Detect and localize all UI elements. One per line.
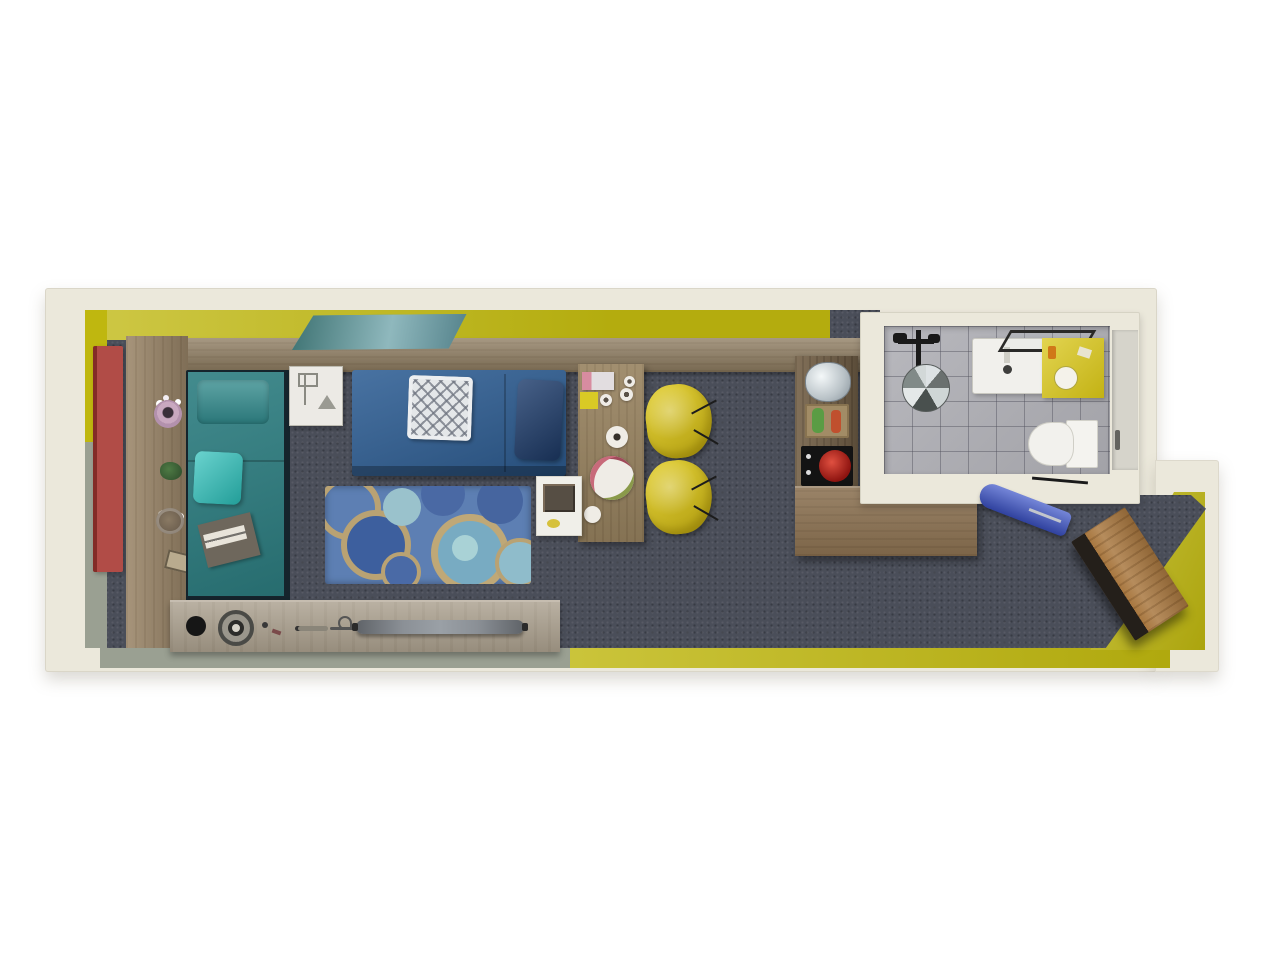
area-rug	[325, 486, 531, 584]
skateboard-truck	[352, 623, 358, 631]
red-kettle	[819, 450, 851, 482]
bathroom-door	[1112, 330, 1138, 470]
bed-tray	[197, 512, 260, 568]
lemon	[547, 519, 560, 528]
bottle-tray	[543, 484, 575, 512]
flower-bowl	[156, 508, 184, 534]
speaker-small	[186, 616, 206, 636]
mug	[584, 506, 601, 523]
shower-pipe	[916, 330, 921, 366]
rug-circle-inner	[452, 535, 478, 561]
lattice-cushion	[407, 375, 473, 441]
cooktop	[801, 446, 853, 486]
food-plate	[590, 456, 634, 500]
bed-pillow	[197, 380, 269, 424]
toilet-bowl	[1028, 422, 1074, 466]
red-bottle	[831, 410, 841, 433]
cooktop-knob	[806, 454, 811, 459]
yellow-chair	[646, 384, 712, 458]
bowl	[606, 426, 628, 448]
dining-desk	[578, 364, 644, 542]
pink-box	[582, 372, 614, 390]
bathroom-counter	[1042, 338, 1104, 398]
speaker-round	[218, 610, 254, 646]
side-table	[536, 476, 582, 536]
sketch-line	[304, 375, 306, 405]
book	[203, 525, 247, 549]
shower-valve	[893, 333, 907, 343]
skateboard	[356, 620, 524, 634]
round-basin	[1054, 366, 1078, 390]
rug-circle	[421, 486, 465, 516]
rug-circle	[381, 552, 421, 584]
yellow-chair	[646, 460, 712, 534]
floor-plan-canvas	[0, 0, 1280, 960]
yellow-note	[580, 392, 598, 409]
toilet	[1028, 420, 1096, 466]
nightstand	[289, 366, 343, 426]
bed-frame	[186, 370, 290, 602]
cosmetic-bottle	[1048, 346, 1056, 359]
single-bed	[188, 372, 284, 596]
wall-art	[292, 314, 470, 350]
shower-head	[902, 364, 950, 412]
small-plate	[624, 376, 635, 387]
sink-faucet	[1003, 365, 1012, 374]
kitchenette-unit	[795, 356, 858, 488]
potted-plant	[160, 462, 182, 480]
small-plate	[620, 388, 633, 401]
turquoise-cushion	[193, 451, 244, 505]
rug-circle	[383, 488, 421, 526]
sofa-seam	[504, 374, 506, 472]
red-door	[93, 346, 123, 572]
sofa-daybed	[352, 370, 566, 476]
small-object	[272, 629, 282, 636]
sketch-triangle	[318, 395, 336, 409]
flower-pot	[154, 400, 182, 428]
skateboard-truck	[522, 623, 528, 631]
media-console	[170, 600, 560, 652]
small-object	[262, 622, 268, 628]
navy-pillow	[514, 379, 564, 461]
door-handle	[1115, 430, 1120, 450]
rug-circle	[477, 486, 523, 524]
soap-bar	[1077, 346, 1092, 359]
cooktop-knob	[806, 470, 811, 475]
small-plate	[600, 394, 612, 406]
sketch-lamp-icon	[298, 373, 318, 387]
chair-seat	[642, 456, 717, 537]
chair-seat	[642, 380, 717, 461]
cutting-board	[805, 404, 849, 438]
wire-hook	[338, 616, 352, 630]
shower-valve	[928, 334, 940, 343]
hand-tool	[298, 626, 328, 631]
white-kettle	[805, 362, 851, 402]
green-bottle	[812, 408, 824, 433]
headboard-ledge	[148, 338, 862, 372]
sofa-shadow	[352, 466, 566, 476]
